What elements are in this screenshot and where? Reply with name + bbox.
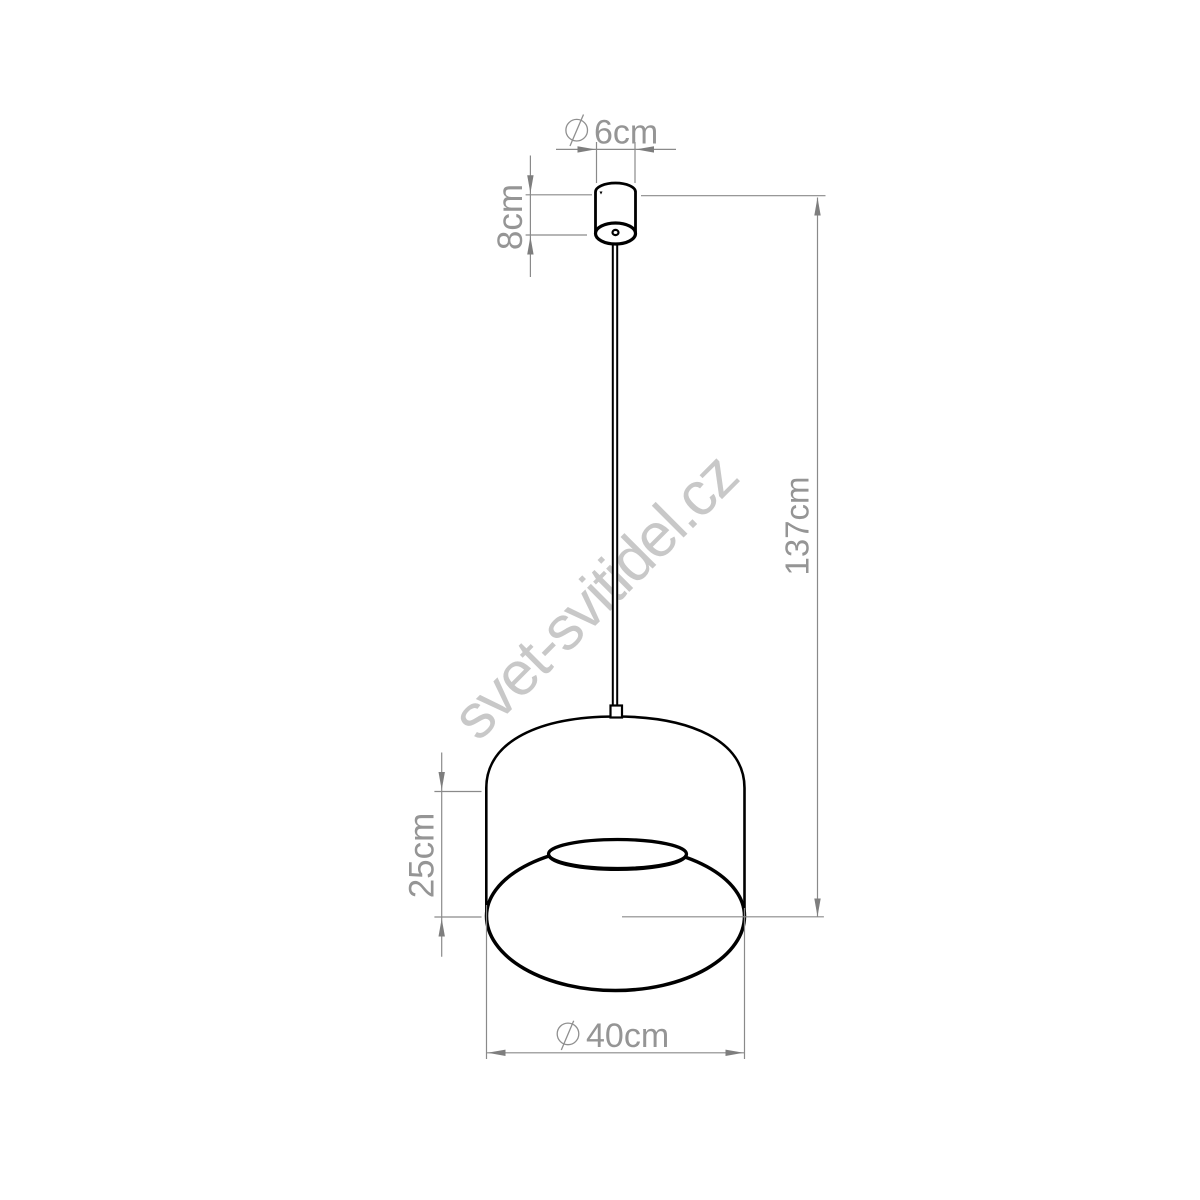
svg-text:137cm: 137cm — [779, 476, 816, 575]
svg-text:25cm: 25cm — [403, 813, 442, 899]
svg-text:6cm: 6cm — [594, 114, 658, 152]
svg-text:svet-svitidel.cz: svet-svitidel.cz — [439, 441, 750, 752]
svg-text:8cm: 8cm — [491, 184, 530, 250]
svg-text:40cm: 40cm — [586, 1017, 669, 1055]
